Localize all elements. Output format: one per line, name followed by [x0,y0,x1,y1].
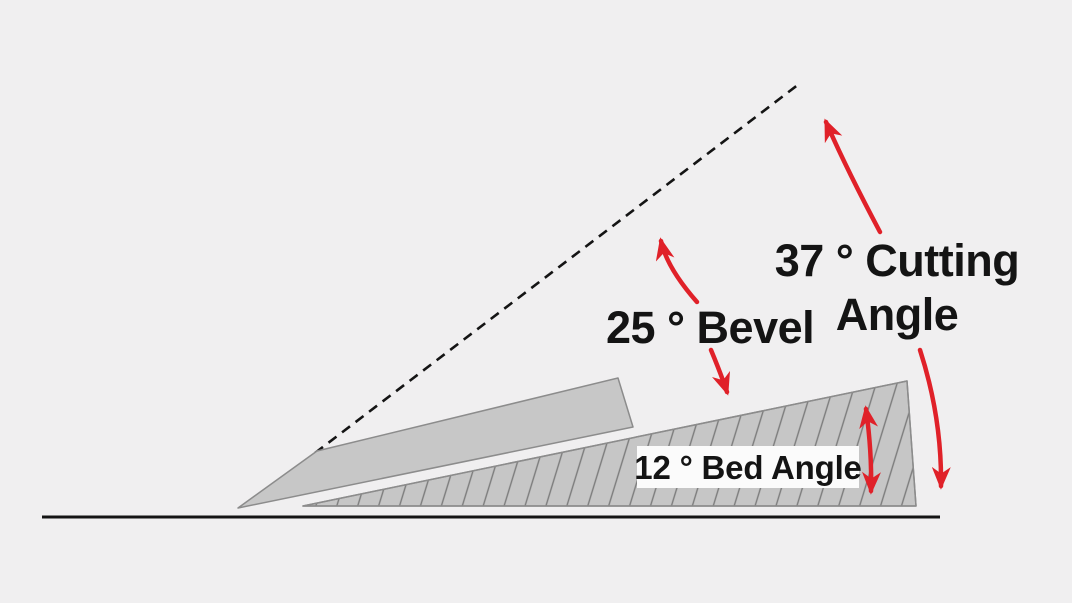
bevel-angle-label: 25 ° Bevel [606,302,814,353]
cutting-angle-label-line1: 37 ° Cutting [775,235,1020,286]
cutting-angle-label-line2: Angle [836,289,959,340]
diagram-canvas: 37 ° Cutting Angle 25 ° Bevel 12 ° Bed A… [0,0,1072,603]
blade-angle-diagram: 37 ° Cutting Angle 25 ° Bevel 12 ° Bed A… [0,0,1072,603]
bed-angle-label: 12 ° Bed Angle [634,449,861,486]
